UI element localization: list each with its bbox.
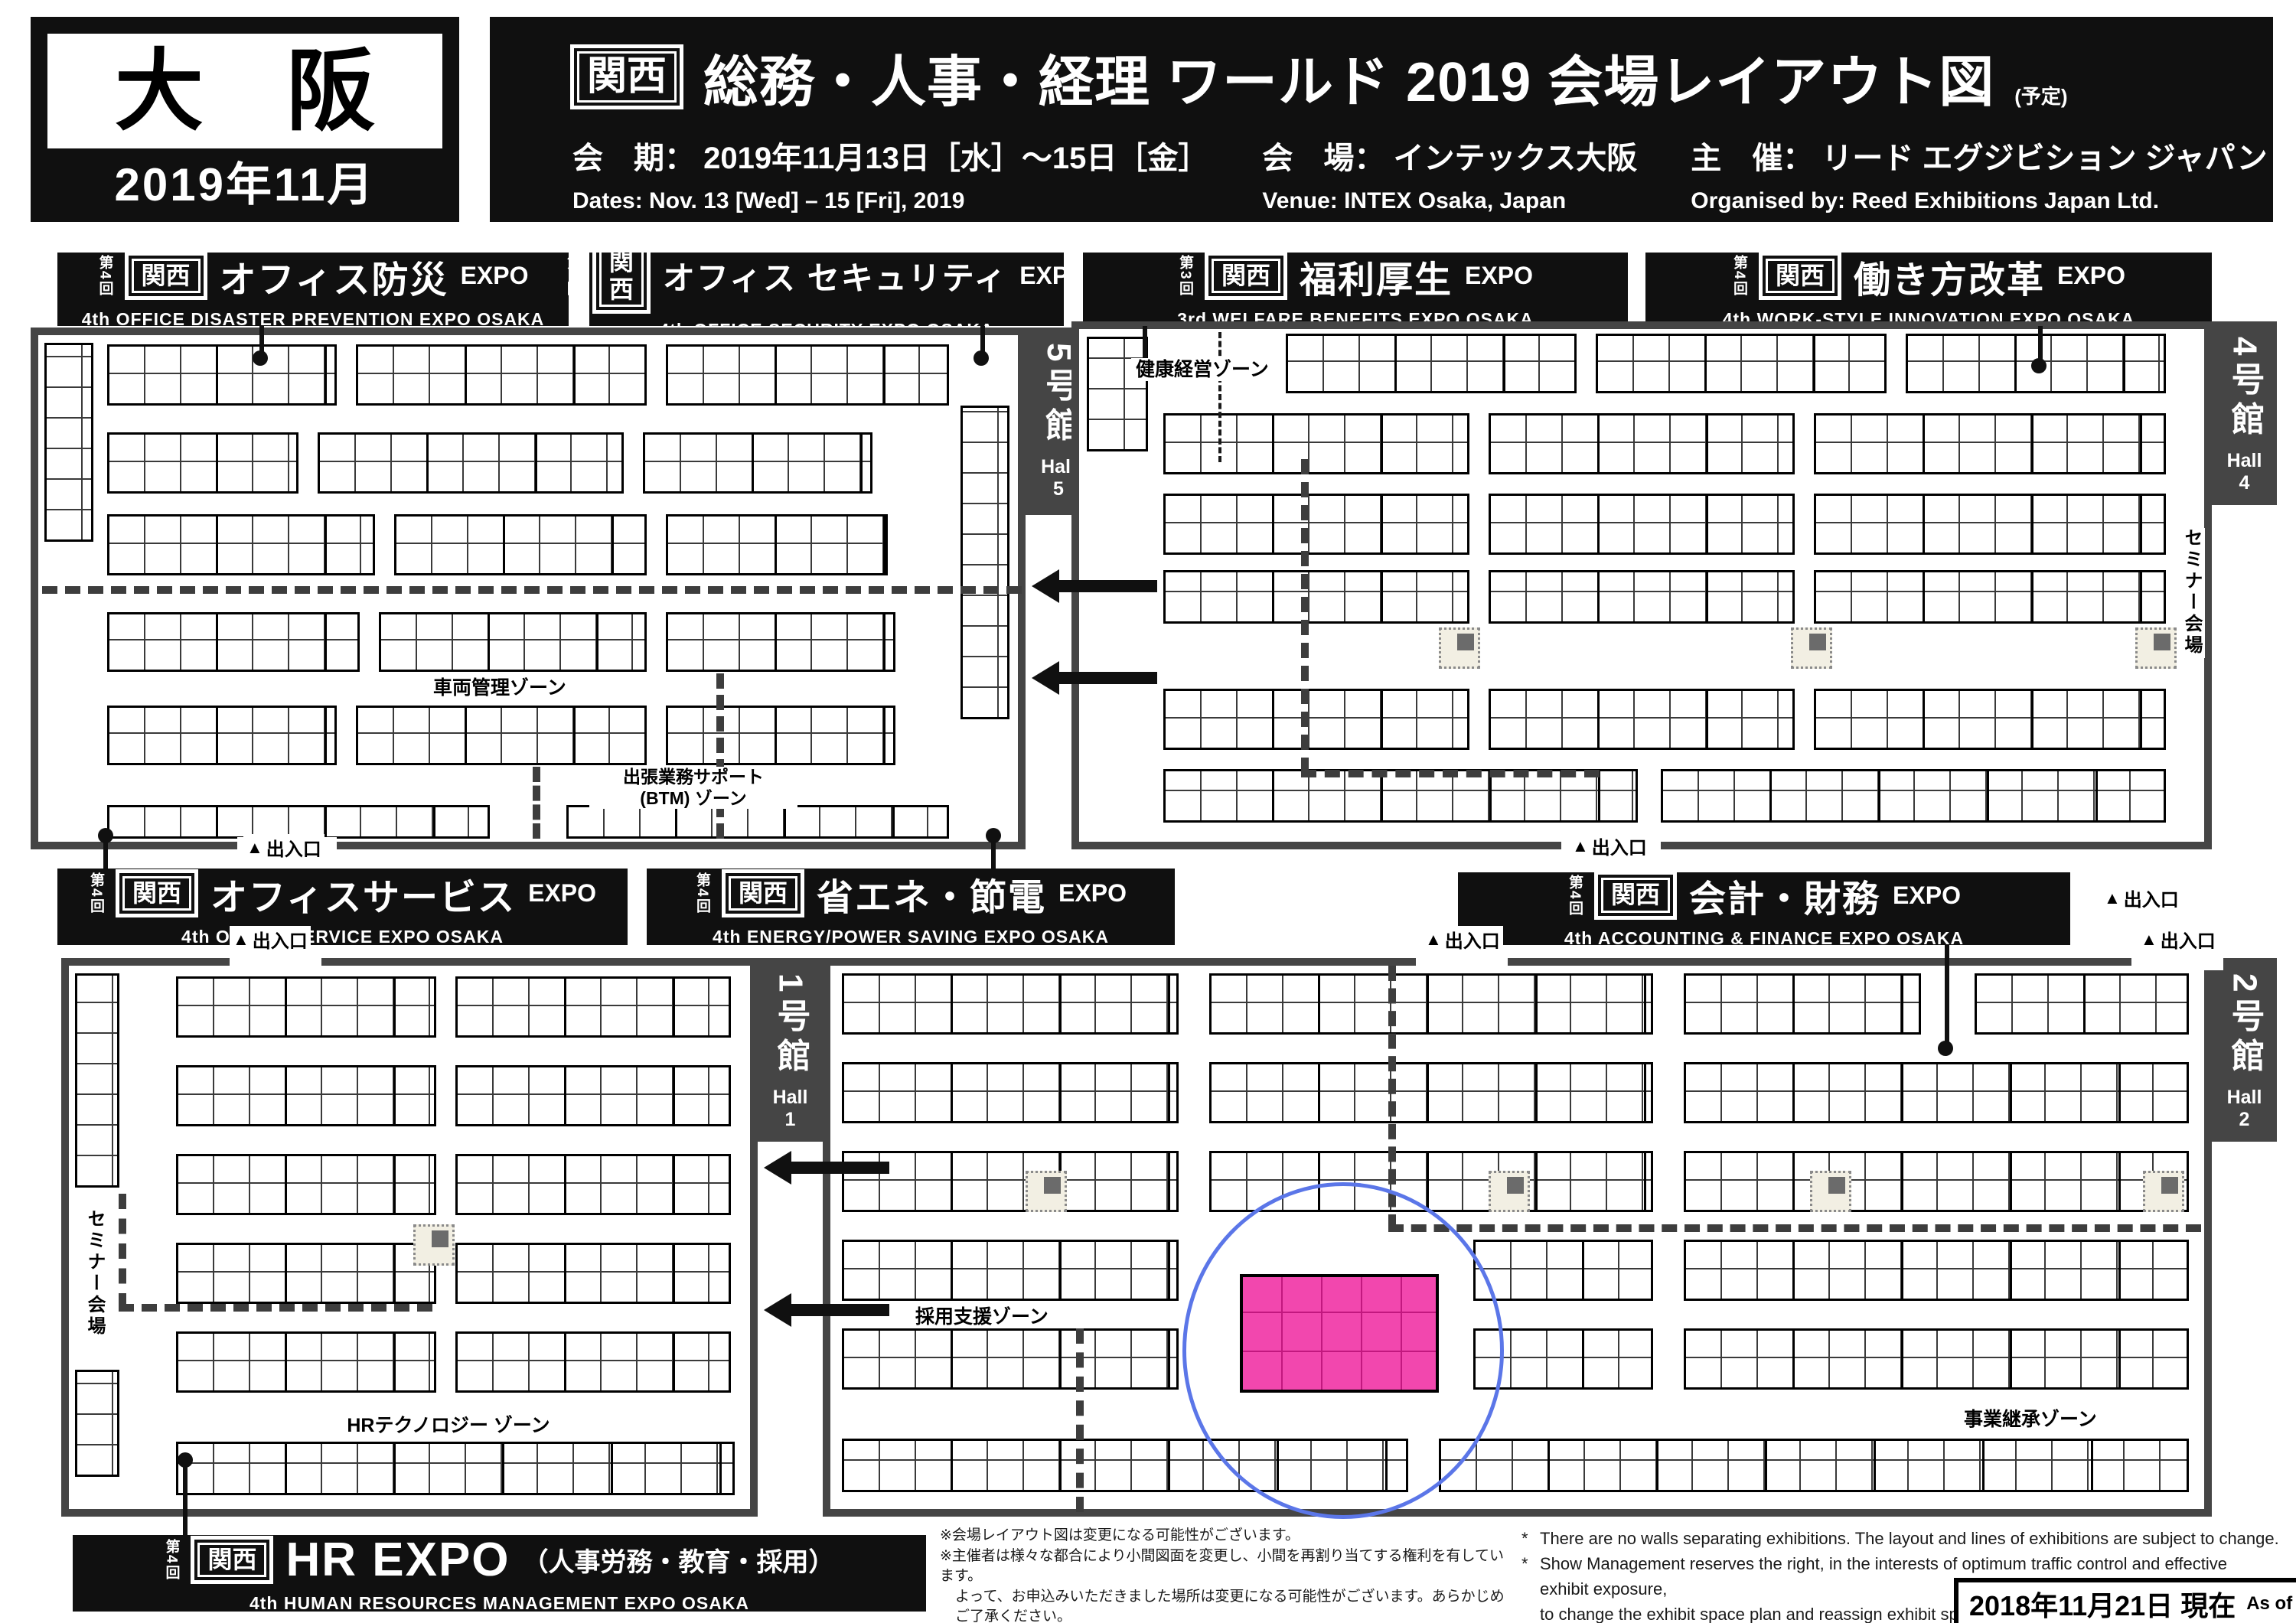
note-line: * There are no walls separating exhibiti… bbox=[1521, 1526, 2279, 1551]
zone-label-btm-line1: 出張業務サポート bbox=[623, 767, 764, 787]
banner-office-security-expo: 第4回 関西 オフィス セキュリティ EXPO 4th OFFICE SECUR… bbox=[589, 253, 1064, 326]
entrance-triangle-icon: ▲ bbox=[246, 838, 263, 858]
note-line: ※会場レイアウト図は変更になる可能性がございます。 bbox=[940, 1526, 1506, 1546]
booth-block bbox=[1209, 973, 1653, 1035]
pillar-core bbox=[2154, 634, 2170, 650]
banner-office-disaster-expo: 第4回 関西 オフィス防災 EXPO 4th OFFICE DISASTER P… bbox=[57, 253, 569, 326]
event-title-note: (予定) bbox=[2014, 81, 2067, 117]
entrance-hall5-bottom: ▲ 出入口 bbox=[243, 834, 325, 861]
hall1-label-en: Hall1 bbox=[773, 1087, 808, 1131]
entrance-triangle-icon: ▲ bbox=[1572, 836, 1589, 856]
pillar-marker bbox=[2135, 627, 2177, 669]
leader-line bbox=[991, 840, 996, 869]
expo-round: 第4回 bbox=[1732, 255, 1746, 297]
pillar-marker bbox=[2143, 1171, 2184, 1212]
expo-round: 第4回 bbox=[98, 255, 113, 297]
expo-name-en: 4th OFFICE DISASTER PREVENTION EXPO OSAK… bbox=[82, 309, 545, 330]
aisle-dashed-line bbox=[716, 673, 724, 839]
hall-word: Hall bbox=[2227, 1087, 2262, 1108]
pillar-marker bbox=[1439, 627, 1480, 669]
entrance-hall1-top: ▲ 出入口 bbox=[230, 926, 311, 953]
zone-label-recruiting-support: 採用支援ゾーン bbox=[911, 1305, 1053, 1328]
banner-title-row: 第4回 関西 HR EXPO （人事労務・教育・採用） bbox=[164, 1533, 834, 1587]
kansai-badge-label: 関西 bbox=[1766, 259, 1835, 293]
booth-block bbox=[666, 612, 895, 672]
aisle-dashed-line bbox=[119, 1194, 126, 1309]
kansai-badge: 関西 bbox=[191, 1536, 273, 1584]
entrance-triangle-icon: ▲ bbox=[2104, 888, 2121, 908]
note-bullet: * bbox=[1521, 1526, 1540, 1551]
expo-word: EXPO bbox=[528, 879, 596, 908]
expo-round: 第3回 bbox=[1178, 255, 1192, 297]
booth-block bbox=[1684, 1151, 2189, 1212]
venue-jp: 会 場： インテックス大阪 bbox=[1262, 133, 1637, 178]
expo-name-en: 4th ENERGY/POWER SAVING EXPO OSAKA bbox=[713, 927, 1109, 947]
booth-block bbox=[1975, 973, 2189, 1035]
expo-round: 第4回 bbox=[695, 872, 709, 914]
kansai-badge: 関西 bbox=[1759, 252, 1841, 300]
kansai-badge-label: 関西 bbox=[1601, 878, 1670, 912]
booth-block bbox=[455, 1331, 731, 1393]
entrance-near-accounting-banner: ▲ 出入口 bbox=[2101, 885, 2182, 911]
booth-block bbox=[1209, 1062, 1653, 1123]
kansai-badge: 関西 bbox=[570, 44, 683, 109]
expo-round: 第4回 bbox=[566, 255, 580, 297]
booth-block bbox=[1684, 1240, 2189, 1301]
arrow-head-icon bbox=[1032, 661, 1059, 695]
booth-block bbox=[1087, 337, 1148, 451]
pillar-core bbox=[1809, 634, 1826, 650]
hall5-label-jp: 5号館 bbox=[1042, 343, 1075, 447]
entrance-notch bbox=[2131, 955, 2223, 970]
booth-block bbox=[455, 1065, 731, 1126]
expo-word: EXPO bbox=[1019, 262, 1088, 290]
entrance-triangle-icon: ▲ bbox=[233, 930, 249, 950]
kansai-badge-label: 関西 bbox=[197, 1543, 266, 1577]
booth-block bbox=[1489, 413, 1795, 474]
zone-label-vehicle-management: 車両管理ゾーン bbox=[429, 676, 571, 699]
booth-block bbox=[1473, 1240, 1653, 1301]
as-of-date-box: 2018年11月21日 現在 As of Nov. 21, 2018 bbox=[1954, 1578, 2296, 1623]
banner-title-row: 第4回 関西 オフィス防災 EXPO bbox=[98, 249, 529, 303]
pillar-marker bbox=[1489, 1171, 1530, 1212]
booth-block bbox=[1684, 973, 1921, 1035]
kansai-badge-label: 関西 bbox=[132, 259, 201, 293]
booth-block bbox=[176, 1065, 436, 1126]
expo-name-en: 4th ACCOUNTING & FINANCE EXPO OSAKA bbox=[1564, 928, 1964, 949]
pillar-marker bbox=[1026, 1171, 1067, 1212]
booth-block bbox=[1684, 1328, 2189, 1390]
booth-block bbox=[1661, 769, 2166, 823]
entrance-hall4-bottom: ▲ 出入口 bbox=[1569, 833, 1650, 859]
zone-label-business-succession: 事業継承ゾーン bbox=[1959, 1408, 2102, 1431]
hall2-label-jp: 2号館 bbox=[2228, 973, 2262, 1077]
note-bullet: * bbox=[1521, 1551, 1540, 1602]
expo-name: オフィス防災 bbox=[220, 249, 448, 303]
expo-round: 第4回 bbox=[164, 1539, 178, 1581]
expo-word: EXPO bbox=[1058, 879, 1127, 908]
note-text: There are no walls separating exhibition… bbox=[1540, 1526, 2279, 1551]
booth-block bbox=[356, 344, 647, 406]
banner-energy-saving-expo: 第4回 関西 省エネ・節電 EXPO 4th ENERGY/POWER SAVI… bbox=[647, 869, 1175, 945]
booth-block bbox=[1814, 494, 2166, 555]
booth-block bbox=[176, 1442, 735, 1495]
booth-block bbox=[842, 1240, 1179, 1301]
aisle-dashed-line bbox=[1388, 1224, 2201, 1232]
aisle-dashed-line bbox=[1076, 1328, 1084, 1512]
booth-block bbox=[44, 343, 93, 542]
hall-word: Hall bbox=[773, 1087, 808, 1108]
booth-block bbox=[842, 973, 1179, 1035]
hall-number: 1 bbox=[785, 1109, 796, 1130]
zone-label-btm-line2: (BTM) ゾーン bbox=[640, 788, 746, 808]
pillar-core bbox=[2161, 1177, 2178, 1194]
entrance-label: 出入口 bbox=[2161, 926, 2216, 953]
booth-block bbox=[1489, 570, 1795, 624]
osaka-city-label: 大 阪 bbox=[86, 47, 404, 135]
as-of-date-en: As of Nov. 21, 2018 bbox=[2246, 1593, 2296, 1615]
pillar-core bbox=[1044, 1177, 1061, 1194]
kansai-badge: 関西 bbox=[116, 869, 198, 917]
zone-label-seminar-hall4: セミナー会場 bbox=[2178, 528, 2205, 658]
zone-label-seminar-hall1: セミナー会場 bbox=[81, 1209, 108, 1354]
booth-block bbox=[566, 805, 949, 839]
hall2-floorplan bbox=[823, 958, 2212, 1517]
leader-line bbox=[103, 840, 108, 869]
leader-dot bbox=[974, 350, 989, 366]
entrance-label: 出入口 bbox=[253, 926, 308, 953]
booth-block bbox=[75, 1370, 119, 1477]
booth-block bbox=[643, 432, 872, 494]
banner-hr-expo: 第4回 関西 HR EXPO （人事労務・教育・採用） 4th HUMAN RE… bbox=[73, 1535, 926, 1612]
booth-block bbox=[1286, 334, 1577, 393]
pillar-marker bbox=[1791, 627, 1832, 669]
event-dates: 会 期： 2019年11月13日［水］〜15日［金］ Dates: Nov. 1… bbox=[572, 133, 1208, 214]
kansai-badge-label: 関西 bbox=[122, 876, 191, 911]
event-info-row: 会 期： 2019年11月13日［水］〜15日［金］ Dates: Nov. 1… bbox=[572, 133, 2296, 214]
booth-block bbox=[666, 706, 895, 765]
booth-block bbox=[842, 1151, 1179, 1212]
kansai-badge: 関西 bbox=[592, 238, 651, 313]
arrow-head-icon bbox=[764, 1293, 791, 1327]
booth-block bbox=[1596, 334, 1887, 393]
booth-block bbox=[1684, 1062, 2189, 1123]
kansai-badge: 関西 bbox=[722, 869, 804, 917]
booth-block bbox=[960, 406, 1009, 719]
booth-block bbox=[666, 344, 949, 406]
entrance-triangle-icon: ▲ bbox=[2141, 930, 2157, 950]
aisle-dashed-line bbox=[1301, 770, 1600, 777]
kansai-badge: 関西 bbox=[1594, 871, 1677, 919]
expo-name: HR EXPO bbox=[285, 1533, 510, 1587]
booth-block bbox=[107, 706, 337, 765]
hall-number: 2 bbox=[2239, 1109, 2250, 1130]
dates-jp: 会 期： 2019年11月13日［水］〜15日［金］ bbox=[572, 133, 1208, 178]
entrance-triangle-icon: ▲ bbox=[1425, 930, 1442, 950]
booth-block bbox=[666, 514, 888, 575]
booth-block bbox=[1163, 413, 1469, 474]
entrance-label: 出入口 bbox=[2124, 885, 2179, 911]
hall-connector-arrow bbox=[764, 1293, 889, 1327]
expo-word: EXPO bbox=[1893, 882, 1961, 910]
leader-dot bbox=[1938, 1041, 1953, 1056]
arrow-bar bbox=[1059, 672, 1157, 684]
booth-block bbox=[176, 1154, 436, 1215]
entrance-hall2-top-left: ▲ 出入口 bbox=[1422, 926, 1503, 953]
event-venue: 会 場： インテックス大阪 Venue: INTEX Osaka, Japan bbox=[1262, 133, 1637, 214]
entrance-notch bbox=[230, 955, 321, 970]
osaka-date-box: 大 阪 2019年11月 bbox=[31, 17, 459, 222]
zone-label-btm: 出張業務サポート (BTM) ゾーン bbox=[589, 767, 797, 809]
banner-title-row: 第4回 関西 省エネ・節電 EXPO bbox=[695, 867, 1127, 921]
venue-layout-page: 大 阪 2019年11月 関西 総務・人事・経理 ワールド 2019 会場レイア… bbox=[0, 0, 2296, 1623]
entrance-label: 出入口 bbox=[1592, 833, 1647, 859]
aisle-dashed-line bbox=[119, 1304, 432, 1312]
booth-block bbox=[107, 514, 375, 575]
pillar-marker bbox=[1810, 1171, 1851, 1212]
aisle-dashed-line bbox=[42, 586, 1022, 594]
dates-en: Dates: Nov. 13 [Wed] – 15 [Fri], 2019 bbox=[572, 188, 1208, 214]
booth-block bbox=[1489, 494, 1795, 555]
note-line: ※主催者は様々な都合により小間図面を変更し、小間を再割り当てする権利を有していま… bbox=[940, 1546, 1506, 1587]
pillar-core bbox=[1507, 1177, 1524, 1194]
booth-block bbox=[107, 612, 360, 672]
note-bullet bbox=[1521, 1602, 1540, 1623]
arrow-head-icon bbox=[1032, 569, 1059, 603]
leader-dot bbox=[253, 350, 268, 366]
banner-title-row: 第4回 関西 会計・財務 EXPO bbox=[1567, 869, 1961, 922]
kansai-badge: 関西 bbox=[1205, 252, 1287, 300]
expo-word: EXPO bbox=[2057, 262, 2125, 290]
kansai-badge-label: 関西 bbox=[577, 51, 677, 103]
event-header: 関西 総務・人事・経理 ワールド 2019 会場レイアウト図 (予定) 会 期：… bbox=[490, 17, 2273, 222]
entrance-hall2-top-right: ▲ 出入口 bbox=[2138, 926, 2219, 953]
venue-en: Venue: INTEX Osaka, Japan bbox=[1262, 188, 1637, 214]
banner-office-service-expo: 第4回 関西 オフィスサービス EXPO 4th OFFICE SERVICE … bbox=[57, 869, 628, 945]
kansai-badge-label: 関西 bbox=[729, 876, 797, 911]
banner-workstyle-innovation-expo: 第4回 関西 働き方改革 EXPO 4th WORK-STYLE INNOVAT… bbox=[1645, 253, 2212, 326]
booth-block bbox=[379, 612, 647, 672]
expo-word: EXPO bbox=[1465, 262, 1533, 290]
entrance-notch bbox=[1416, 955, 1508, 970]
banner-title-row: 第4回 関西 オフィスサービス EXPO bbox=[89, 867, 596, 921]
booth-block bbox=[1163, 570, 1469, 624]
booth-block bbox=[455, 1243, 731, 1304]
banner-welfare-benefits-expo: 第3回 関西 福利厚生 EXPO 3rd WELFARE BENEFITS EX… bbox=[1083, 253, 1628, 326]
booth-block bbox=[842, 1328, 1179, 1390]
hall1-tab: 1号館 Hall1 bbox=[758, 958, 823, 1142]
leader-line bbox=[1945, 945, 1949, 1048]
event-title-row: 関西 総務・人事・経理 ワールド 2019 会場レイアウト図 (予定) bbox=[570, 37, 2068, 117]
hall-connector-arrow bbox=[1032, 661, 1157, 695]
arrow-head-icon bbox=[764, 1151, 791, 1185]
hall-number: 5 bbox=[1053, 478, 1064, 500]
booth-block bbox=[176, 976, 436, 1038]
booth-block bbox=[176, 1331, 436, 1393]
hall-number: 4 bbox=[2239, 472, 2250, 494]
pillar-core bbox=[432, 1230, 448, 1247]
booth-block bbox=[1814, 413, 2166, 474]
hall4-label-en: Hall4 bbox=[2227, 450, 2262, 494]
aisle-dashed-line bbox=[1301, 459, 1309, 773]
booth-block bbox=[107, 344, 337, 406]
hall4-tab: 4号館 Hall4 bbox=[2212, 321, 2277, 505]
booth-block bbox=[1814, 570, 2166, 624]
aisle-dashed-line bbox=[533, 767, 540, 839]
booth-block bbox=[394, 514, 647, 575]
osaka-city-panel: 大 阪 bbox=[47, 34, 442, 148]
expo-name: 省エネ・節電 bbox=[817, 867, 1046, 921]
notes-japanese: ※会場レイアウト図は変更になる可能性がございます。 ※主催者は様々な都合により小… bbox=[940, 1526, 1506, 1623]
osaka-month-label: 2019年11月 bbox=[31, 148, 459, 214]
pillar-core bbox=[1457, 634, 1474, 650]
entrance-label: 出入口 bbox=[266, 834, 321, 861]
expo-name: オフィスサービス bbox=[210, 867, 516, 921]
hall4-label-jp: 4号館 bbox=[2228, 337, 2262, 441]
entrance-label: 出入口 bbox=[1445, 926, 1500, 953]
expo-name: オフィス セキュリティ bbox=[663, 253, 1007, 299]
booth-block bbox=[1439, 1439, 2189, 1492]
organiser-jp: 主 催： リード エグジビション ジャパン（株） bbox=[1691, 133, 2296, 178]
event-title: 総務・人事・経理 ワールド 2019 会場レイアウト図 bbox=[703, 37, 1994, 117]
pillar-core bbox=[1828, 1177, 1845, 1194]
arrow-bar bbox=[791, 1162, 889, 1174]
expo-name-suffix: （人事労務・教育・採用） bbox=[523, 1541, 835, 1579]
booth-block bbox=[356, 706, 647, 765]
banner-accounting-finance-expo: 第4回 関西 会計・財務 EXPO 4th ACCOUNTING & FINAN… bbox=[1458, 872, 2070, 945]
zone-label-health-management: 健康経営ゾーン bbox=[1131, 358, 1274, 381]
booth-block bbox=[842, 1062, 1179, 1123]
as-of-date-jp: 2018年11月21日 現在 bbox=[1969, 1584, 2236, 1623]
leader-line bbox=[183, 1463, 188, 1535]
booth-block bbox=[1163, 494, 1469, 555]
booth-block bbox=[318, 432, 624, 494]
expo-name: 会計・財務 bbox=[1689, 869, 1880, 922]
booth-block bbox=[107, 432, 298, 494]
kansai-badge-label: 関西 bbox=[1212, 259, 1280, 293]
kansai-badge-label: 関西 bbox=[599, 245, 644, 306]
hall-word: Hall bbox=[2227, 450, 2262, 471]
expo-name-en: 4th HUMAN RESOURCES MANAGEMENT EXPO OSAK… bbox=[249, 1593, 749, 1614]
arrow-bar bbox=[791, 1304, 889, 1316]
booth-block bbox=[176, 1243, 436, 1304]
booth-block bbox=[1163, 689, 1469, 750]
arrow-bar bbox=[1059, 580, 1157, 592]
banner-title-row: 第4回 関西 オフィス セキュリティ EXPO bbox=[566, 238, 1088, 313]
booth-block bbox=[455, 976, 731, 1038]
booth-block bbox=[1814, 689, 2166, 750]
organiser-en: Organised by: Reed Exhibitions Japan Ltd… bbox=[1691, 188, 2296, 214]
aisle-dashed-line bbox=[1218, 332, 1221, 462]
expo-round: 第4回 bbox=[89, 872, 103, 914]
pillar-marker bbox=[413, 1224, 455, 1266]
banner-title-row: 第3回 関西 福利厚生 EXPO bbox=[1178, 249, 1533, 303]
hall2-label-en: Hall2 bbox=[2227, 1087, 2262, 1131]
expo-name: 福利厚生 bbox=[1300, 249, 1453, 303]
booth-block bbox=[1489, 689, 1795, 750]
zone-label-hr-technology: HRテクノロジー ゾーン bbox=[291, 1414, 606, 1437]
leader-dot bbox=[2031, 358, 2047, 373]
note-line: よって、お申込みいただきました場所は変更になる可能性がございます。あらかじめご了… bbox=[940, 1587, 1506, 1623]
highlight-circle bbox=[1182, 1182, 1504, 1519]
booth-block bbox=[75, 973, 119, 1188]
banner-title-row: 第4回 関西 働き方改革 EXPO bbox=[1732, 249, 2125, 303]
expo-word: EXPO bbox=[461, 262, 529, 290]
hall-connector-arrow bbox=[1032, 569, 1157, 603]
expo-round: 第4回 bbox=[1567, 875, 1582, 917]
hall1-label-jp: 1号館 bbox=[774, 973, 807, 1077]
booth-block bbox=[455, 1154, 731, 1215]
expo-name: 働き方改革 bbox=[1854, 249, 2045, 303]
hall2-tab: 2号館 Hall2 bbox=[2212, 958, 2277, 1142]
event-organiser: 主 催： リード エグジビション ジャパン（株） Organised by: R… bbox=[1691, 133, 2296, 214]
kansai-badge: 関西 bbox=[125, 252, 207, 300]
hall-connector-arrow bbox=[764, 1151, 889, 1185]
